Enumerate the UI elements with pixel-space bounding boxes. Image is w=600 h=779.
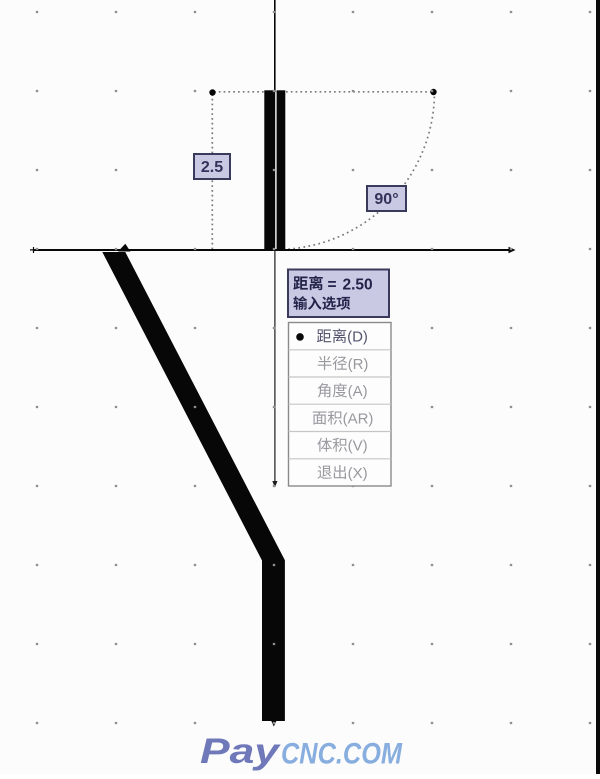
svg-text:90°: 90° — [374, 191, 398, 208]
svg-text:(AR): (AR) — [343, 410, 374, 427]
svg-text:(R): (R) — [348, 356, 369, 373]
svg-text:Pay: Pay — [200, 732, 281, 771]
svg-text:CNC.COM: CNC.COM — [281, 738, 403, 771]
svg-text:(V): (V) — [348, 438, 368, 455]
svg-text:2.5: 2.5 — [201, 159, 223, 176]
svg-text:(D): (D) — [347, 329, 368, 346]
svg-text:(A): (A) — [348, 383, 368, 400]
svg-text:=: = — [328, 276, 337, 293]
svg-text:2.50: 2.50 — [343, 276, 373, 293]
svg-text:(X): (X) — [348, 465, 368, 482]
